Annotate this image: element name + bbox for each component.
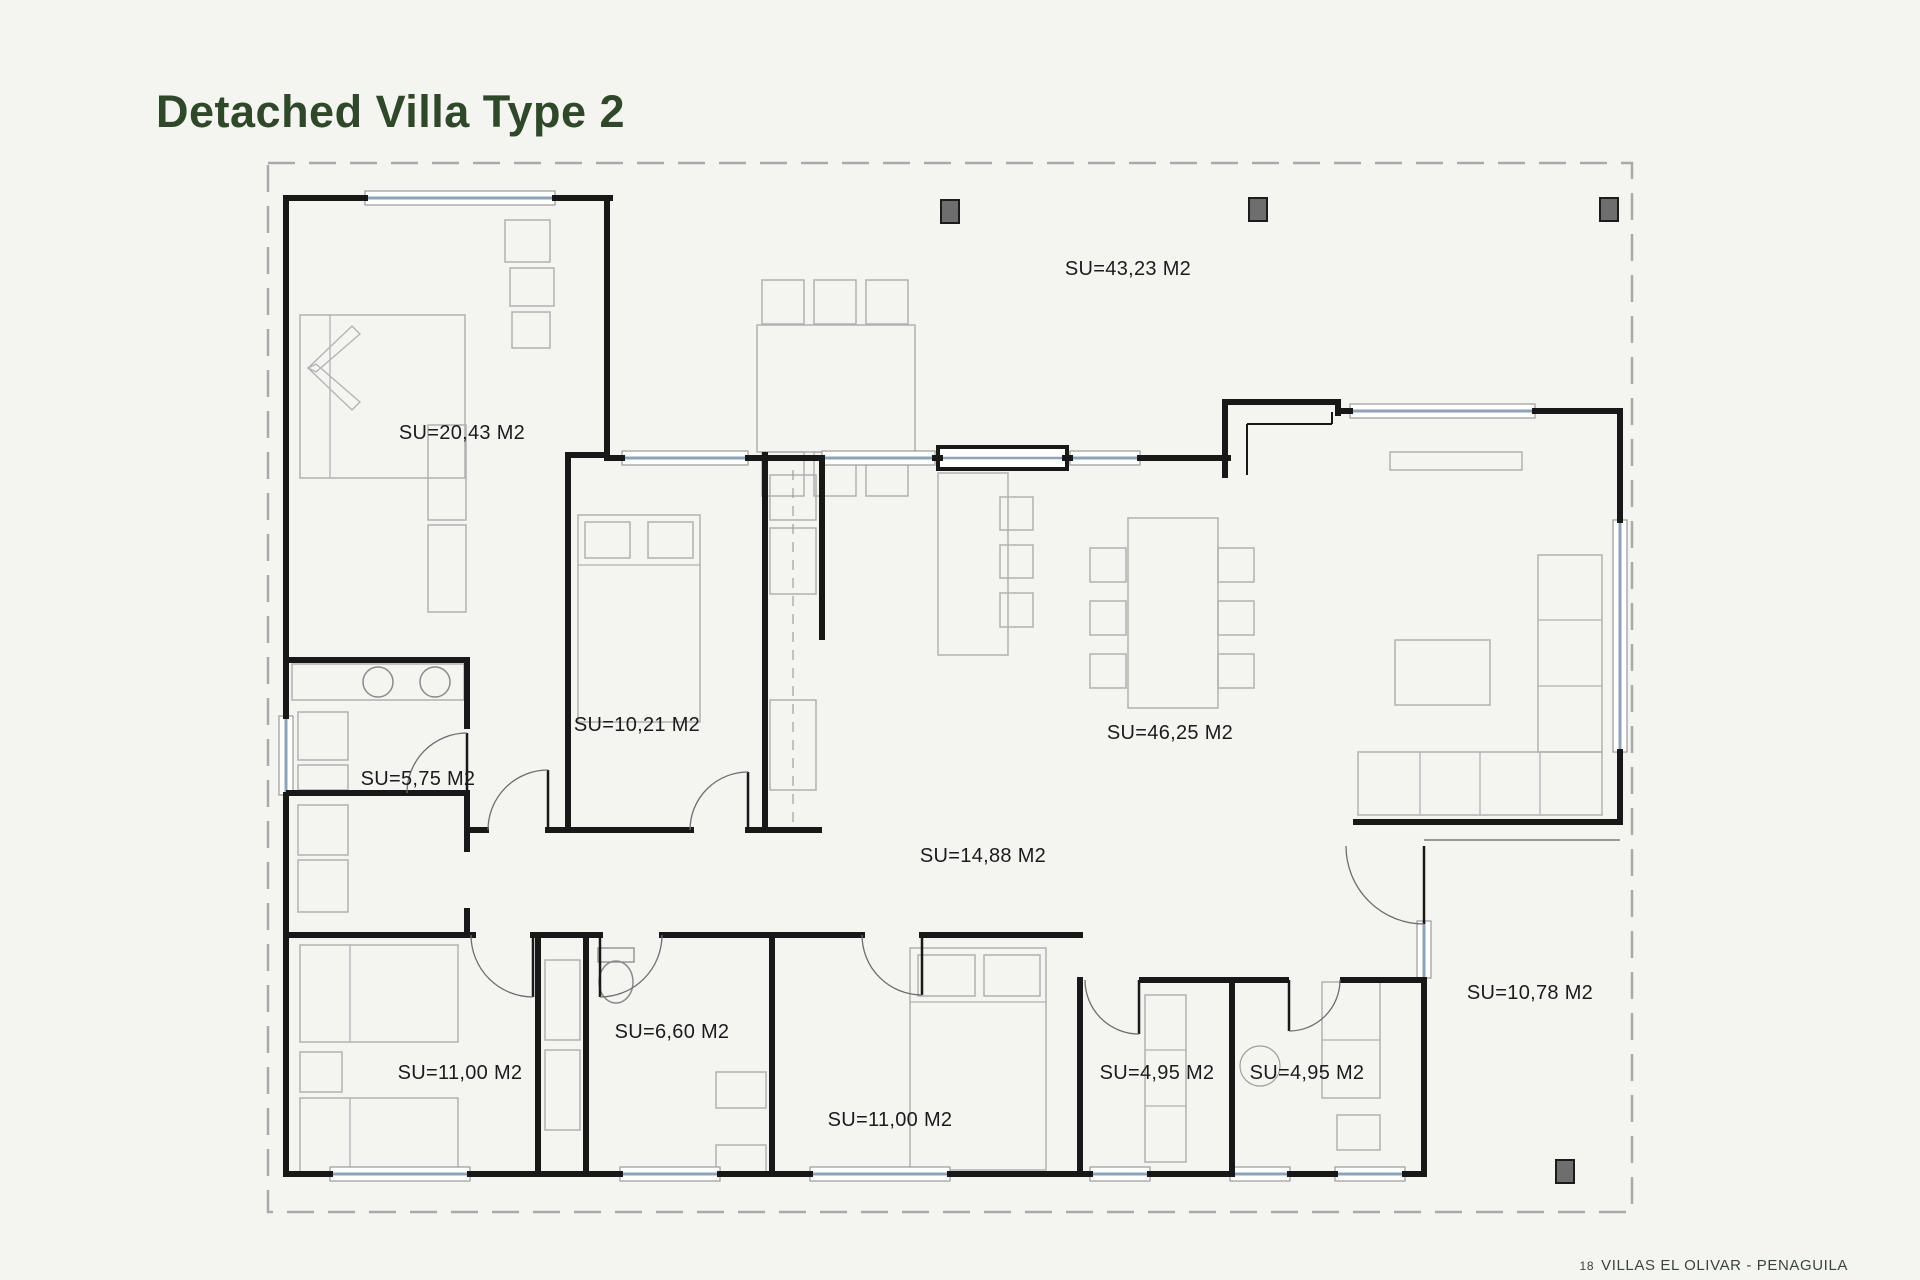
door-swing-arc — [862, 935, 922, 995]
furniture — [1395, 640, 1490, 705]
furniture — [1337, 1115, 1380, 1150]
furniture — [545, 1050, 580, 1130]
door-swing-arc — [690, 772, 748, 830]
door-swing-arc — [1085, 980, 1139, 1034]
furniture — [1000, 593, 1033, 627]
brochure-page: Detached Villa Type 2 SU=20,43 M2SU=43,2… — [0, 0, 1920, 1280]
furniture — [300, 945, 458, 1042]
door-swing-arc — [1346, 846, 1424, 924]
pillow — [308, 364, 360, 410]
doors-layer — [407, 733, 1424, 1034]
furniture — [716, 1072, 766, 1108]
bed — [300, 315, 465, 478]
door-swing-arc — [600, 935, 662, 997]
area-label-wc-2: SU=4,95 M2 — [1250, 1062, 1365, 1084]
column — [1556, 1160, 1574, 1183]
door-swing-arc — [488, 770, 548, 830]
furniture-layer — [292, 220, 1602, 1172]
furniture — [1218, 601, 1254, 635]
furniture — [1218, 654, 1254, 688]
columns-layer — [941, 198, 1618, 1183]
furniture — [757, 325, 915, 452]
furniture — [1000, 545, 1033, 578]
sink — [420, 667, 450, 697]
plot-boundary — [268, 163, 1632, 1212]
furniture — [292, 664, 464, 700]
toilet-cistern — [598, 948, 634, 962]
furniture — [866, 280, 908, 324]
furniture — [1090, 654, 1126, 688]
area-label-bedroom-2: SU=10,21 M2 — [574, 714, 700, 736]
furniture — [512, 312, 550, 348]
door-swing-arc — [1289, 980, 1340, 1031]
furniture — [298, 712, 348, 760]
furniture — [1000, 497, 1033, 530]
footer-project-name: VILLAS EL OLIVAR - PENAGUILA — [1601, 1257, 1848, 1274]
furniture — [938, 473, 1008, 655]
area-label-wc-1: SU=4,95 M2 — [1100, 1062, 1215, 1084]
floor-plan: SU=20,43 M2SU=43,23 M2SU=10,21 M2SU=5,75… — [0, 0, 1920, 1280]
furniture — [300, 1052, 342, 1092]
furniture — [298, 805, 348, 855]
furniture — [578, 515, 700, 722]
furniture — [510, 268, 554, 306]
furniture — [1390, 452, 1522, 470]
area-label-terrace: SU=43,23 M2 — [1065, 258, 1191, 280]
furniture — [1218, 548, 1254, 582]
area-label-bedroom-1: SU=20,43 M2 — [399, 422, 525, 444]
furniture — [1538, 555, 1602, 752]
footer-page-number: 18 — [1580, 1259, 1595, 1273]
furniture — [1128, 518, 1218, 708]
furniture — [1090, 548, 1126, 582]
column — [1249, 198, 1267, 221]
furniture — [814, 280, 856, 324]
furniture — [585, 522, 630, 558]
area-label-porch: SU=10,78 M2 — [1467, 982, 1593, 1004]
furniture — [300, 1098, 458, 1172]
furniture — [1090, 601, 1126, 635]
area-label-hallway: SU=14,88 M2 — [920, 845, 1046, 867]
area-label-bedroom-3: SU=11,00 M2 — [398, 1062, 523, 1084]
furniture — [716, 1145, 766, 1172]
furniture — [918, 955, 975, 996]
sink — [363, 667, 393, 697]
furniture — [648, 522, 693, 558]
walls-layer — [283, 195, 1623, 1177]
furniture — [505, 220, 550, 262]
furniture — [545, 960, 580, 1040]
pillow — [308, 326, 360, 372]
column — [1600, 198, 1618, 221]
area-label-bedroom-4: SU=11,00 M2 — [828, 1109, 953, 1131]
furniture — [298, 860, 348, 912]
furniture — [984, 955, 1040, 996]
area-label-living-room: SU=46,25 M2 — [1107, 722, 1233, 744]
area-label-bathroom-1: SU=5,75 M2 — [361, 768, 476, 790]
plot-boundary-layer — [268, 163, 1632, 1212]
furniture — [298, 765, 348, 790]
column — [941, 200, 959, 223]
area-label-bathroom-2: SU=6,60 M2 — [615, 1021, 730, 1043]
footer: 18VILLAS EL OLIVAR - PENAGUILA — [1580, 1257, 1848, 1274]
furniture — [428, 525, 466, 612]
furniture — [762, 280, 804, 324]
door-swing-arc — [471, 935, 533, 997]
furniture — [910, 948, 1046, 1170]
